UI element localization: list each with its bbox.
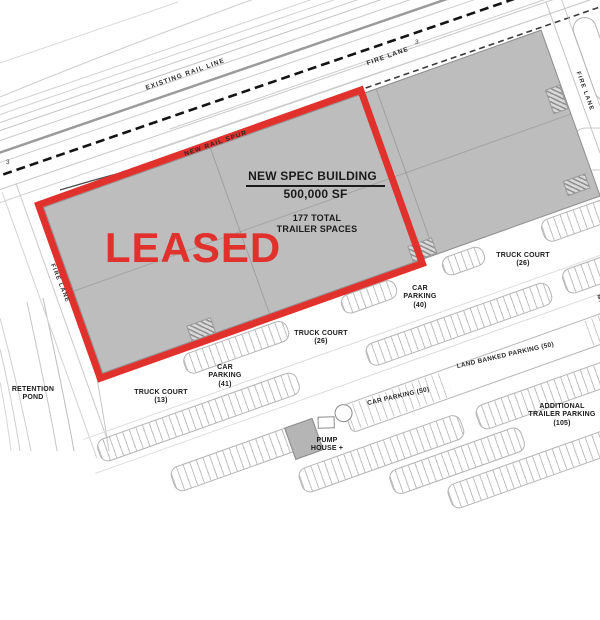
leased-stamp: LEASED (97, 227, 289, 269)
rail-switch-marker: 3 (6, 159, 10, 166)
truck-court-26-right-label: TRUCK COURT (26) (494, 252, 552, 269)
building-size: 500,000 SF (283, 187, 347, 201)
building-name: NEW SPEC BUILDING (246, 169, 385, 187)
retention-pond-label: RETENTION POND (2, 386, 64, 403)
truck-court-26-center-label: TRUCK COURT (26) (292, 330, 350, 347)
pump-house-label: PUMP HOUSE + (306, 437, 348, 454)
building-title-block: NEW SPEC BUILDING 500,000 SF (233, 169, 398, 202)
pump-equipment (318, 416, 335, 428)
car-parking-40-label: CAR PARKING (40) (399, 285, 441, 310)
retention-pond-contours (0, 318, 31, 451)
site-plan: 3 3 (0, 0, 600, 451)
car-parking-41-label: CAR PARKING (41) (204, 364, 246, 389)
trailer-count-line1: 177 TOTAL (293, 213, 341, 223)
additional-trailer-parking-label: ADDITIONAL TRAILER PARKING (105) (526, 403, 598, 428)
truck-court-13-label: TRUCK COURT (13) (132, 389, 190, 406)
